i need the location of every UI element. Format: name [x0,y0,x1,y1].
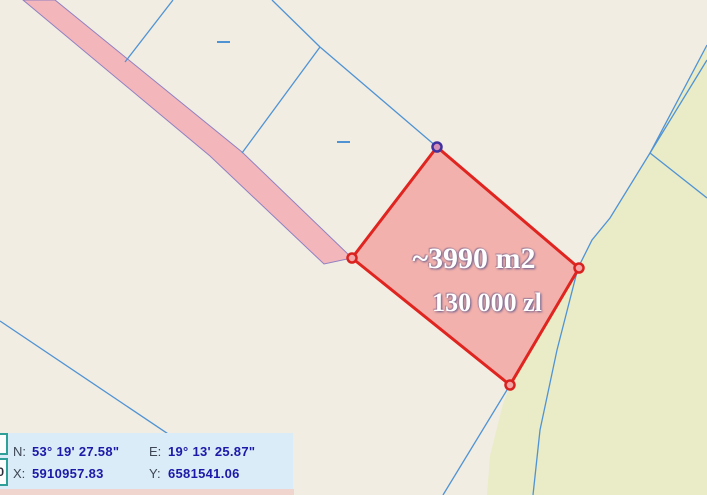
coordinate-panel: N: 53° 19' 27.58" E: 19° 13' 25.87" X: 5… [0,433,293,489]
y-coordinate-label: Y: [149,466,161,481]
north-label: N: [13,444,26,459]
x-coordinate-label: X: [13,466,25,481]
east-value: 19° 13' 25.87" [168,444,255,459]
x-coordinate-value: 5910957.83 [32,466,104,481]
map-view[interactable]: ~3990 m2 130 000 zl N: 53° 19' 27.58" E:… [0,0,707,495]
parcel-vertex-marker[interactable] [348,254,357,263]
parcel-vertex-marker-selected[interactable] [433,143,442,152]
road-strip [23,0,352,264]
north-value: 53° 19' 27.58" [32,444,119,459]
parcel-area-label: ~3990 m2 [412,242,535,276]
east-label: E: [149,444,161,459]
bottom-strip [0,489,294,495]
map-svg[interactable] [0,0,707,495]
scale-box-top [0,433,8,455]
cadastral-boundary-line [242,47,320,153]
y-coordinate-value: 6581541.06 [168,466,240,481]
parcel-vertex-marker[interactable] [506,381,515,390]
cadastral-boundary-line [125,0,173,62]
parcel-vertex-marker[interactable] [575,264,584,273]
cadastral-boundary-line [272,0,320,47]
scale-box-value: 0 [0,465,6,479]
scale-box-zero: 0 [0,458,8,486]
parcel-price-label: 130 000 zl [432,288,542,318]
cadastral-boundary-line [320,47,437,147]
